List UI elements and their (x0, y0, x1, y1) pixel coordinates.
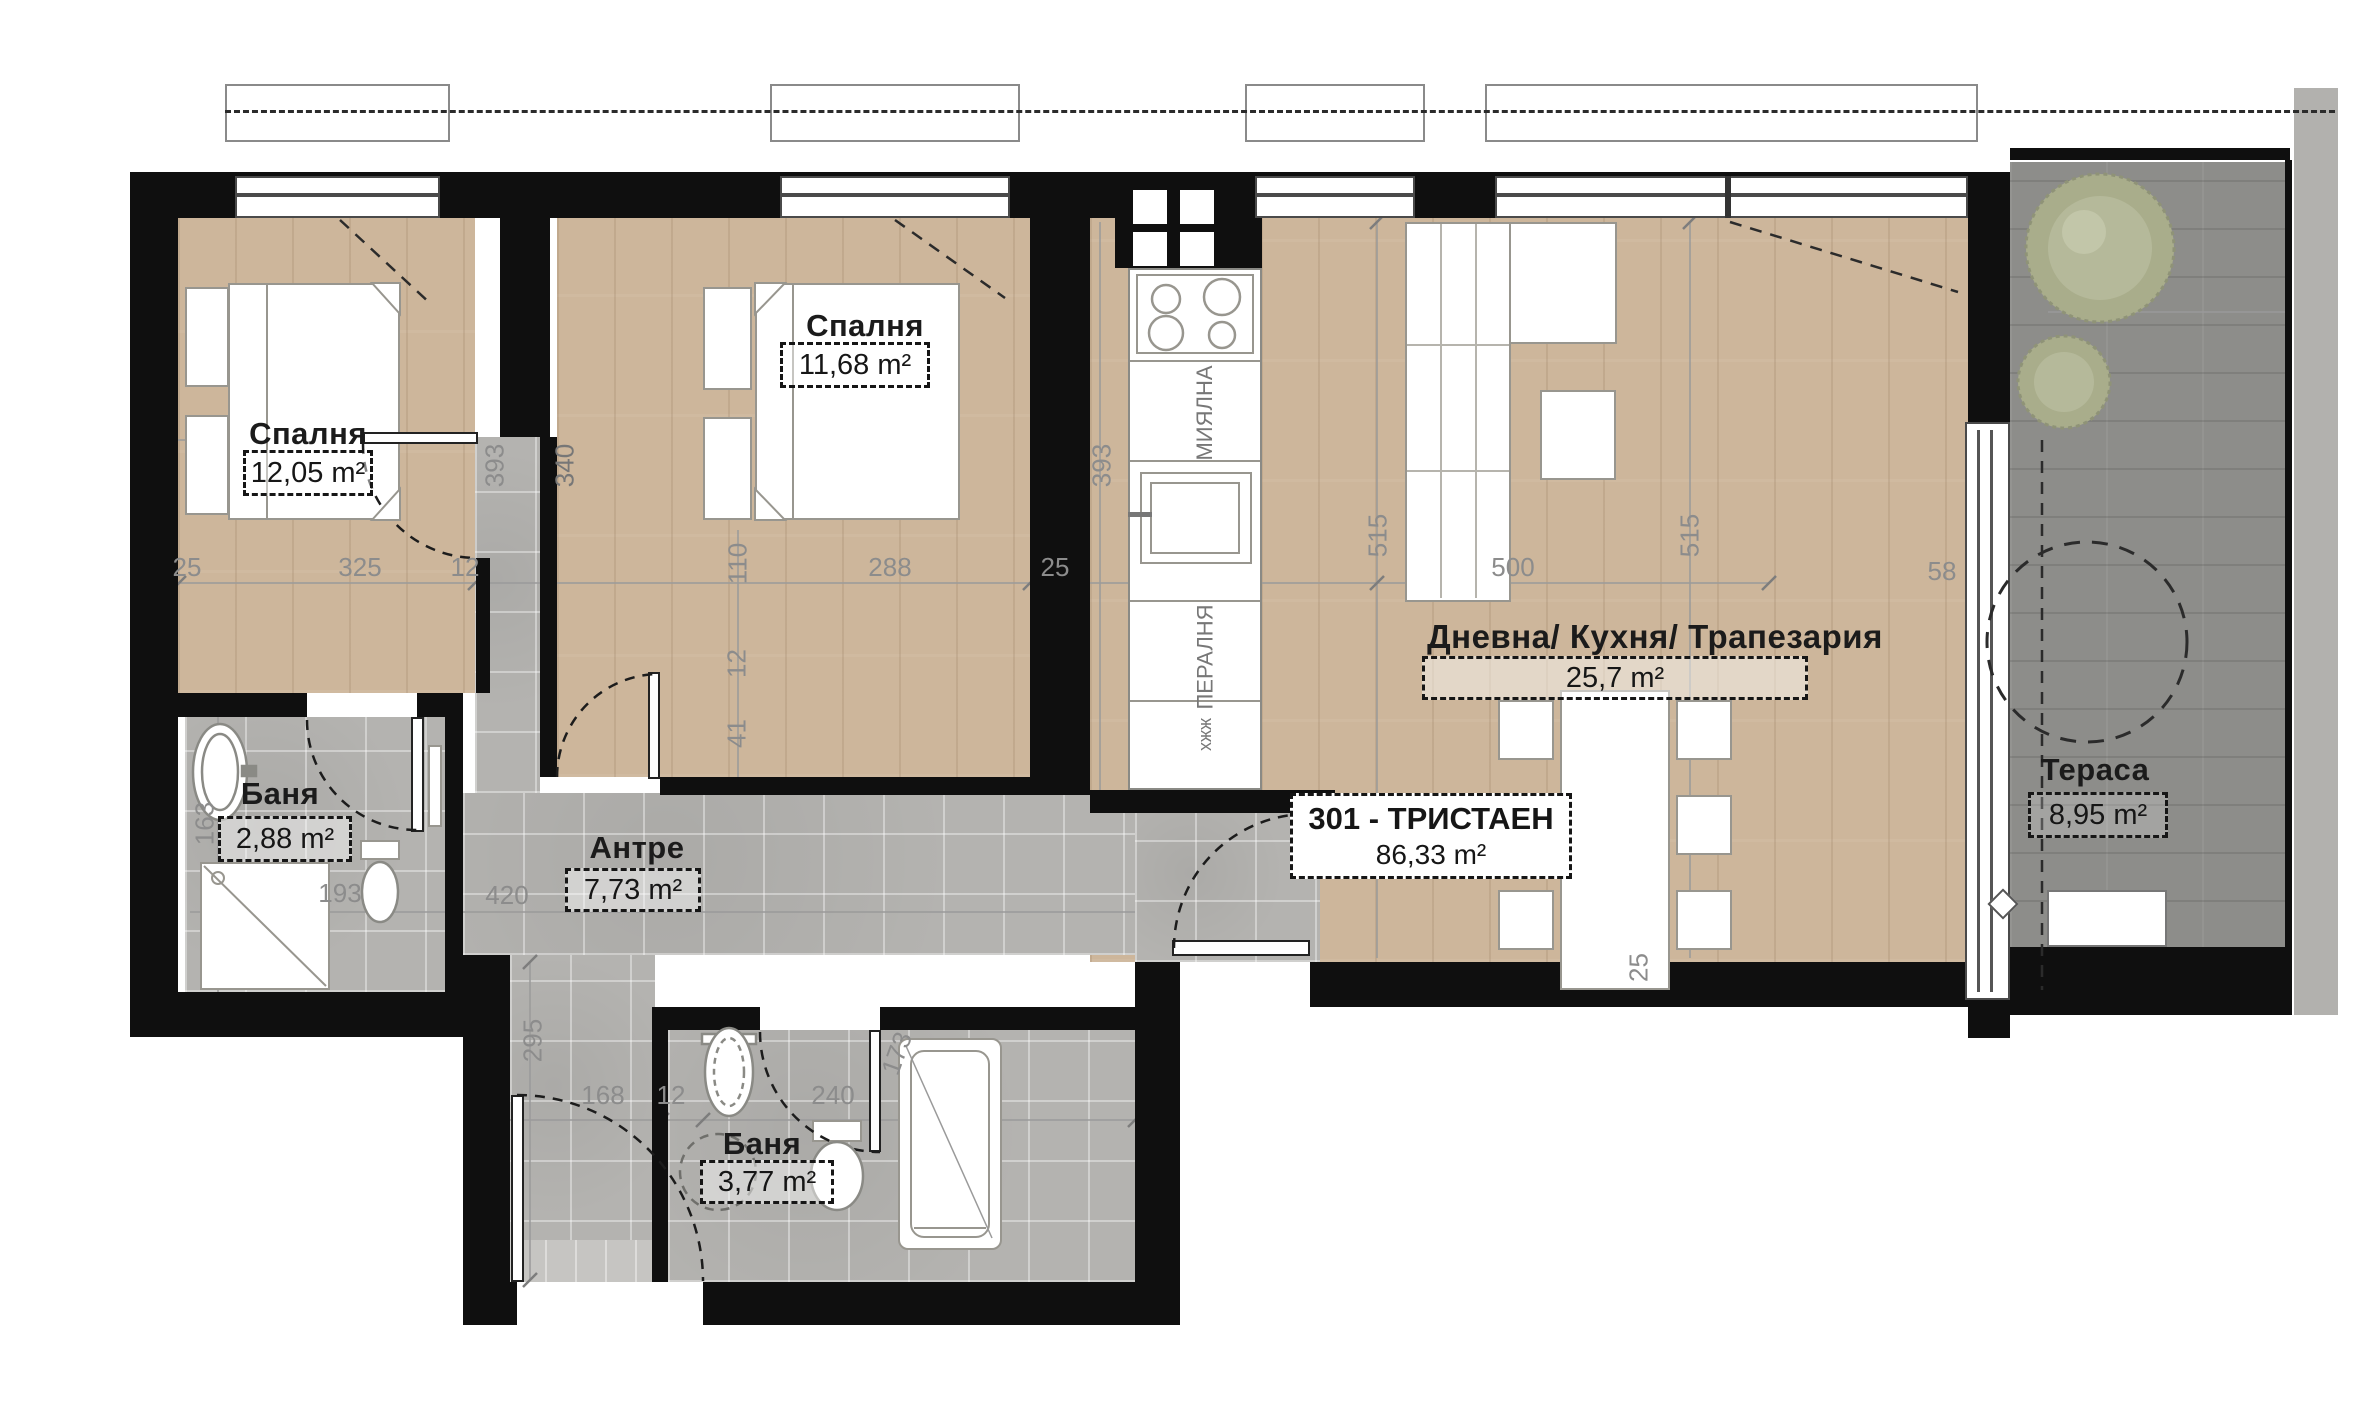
dim-25-living-bottom: 25 (1624, 941, 1655, 995)
unit-area: 86,33 m² (1376, 839, 1487, 871)
bedroom1-bed-fold (372, 283, 400, 314)
bedroom1-bed-fold-b (372, 489, 400, 520)
hall-area: 7,73 m² (565, 868, 701, 912)
dim-top-500: 500 (1473, 552, 1553, 583)
bath2-label: Баня (682, 1126, 842, 1162)
bath1-area: 2,88 m² (218, 816, 352, 862)
bedroom1-area: 12,05 m² (243, 450, 373, 496)
wing-entry-door-arc (517, 1095, 703, 1281)
dim-393-left: 393 (480, 426, 511, 506)
dim-515-a: 515 (1363, 496, 1394, 576)
bedroom2-bed-fold-b (755, 489, 785, 520)
dim-top-25a: 25 (160, 552, 214, 583)
dishwasher-label: МИЯЛНА (1192, 358, 1218, 468)
dim-top-325: 325 (320, 552, 400, 583)
dim-top-12: 12 (442, 552, 488, 583)
bath2-area: 3,77 m² (700, 1160, 834, 1204)
bath1-label: Баня (200, 776, 360, 812)
living-label: Дневна/ Кухня/ Трапезария (1420, 618, 1890, 656)
dim-193: 193 (305, 878, 375, 909)
apartment-entry-door-arc (1174, 814, 1308, 948)
terrace-area: 8,95 m² (2028, 792, 2168, 838)
shrub-icon-large (2026, 174, 2174, 322)
bedroom1-door-arc (363, 444, 477, 558)
dim-top-288: 288 (850, 552, 930, 583)
shrub-icon-small (2018, 336, 2110, 428)
dim-110: 110 (723, 531, 754, 597)
unit-name: 301 - ТРИСТАЕН (1308, 801, 1553, 837)
dim-393-bed2: 393 (1087, 426, 1118, 506)
dim-340: 340 (550, 426, 581, 506)
appliance-misc-label: хжж (1195, 697, 1216, 772)
living-sash-dash (1730, 222, 1958, 292)
dim-12-bottom: 12 (648, 1080, 694, 1111)
dim-58: 58 (1912, 556, 1972, 587)
bath2-washbasin-icon (702, 1028, 756, 1116)
dim-168: 168 (568, 1080, 638, 1111)
unit-label-box: 301 - ТРИСТАЕН 86,33 m² (1290, 793, 1572, 879)
living-area: 25,7 m² (1422, 656, 1808, 700)
bath1-door-arc (307, 720, 417, 830)
terrace-label: Тераса (2010, 752, 2180, 788)
dim-163: 163 (190, 789, 221, 859)
hall-label: Антре (552, 830, 722, 866)
dim-41: 41 (722, 709, 753, 759)
hot-tub-outline-icon (1987, 542, 2187, 742)
dim-12-mid: 12 (722, 639, 753, 689)
bedroom2-sash-dash (895, 220, 1005, 298)
bedroom1-label: Спалня (218, 416, 398, 452)
dim-240: 240 (798, 1080, 868, 1111)
dim-295: 295 (518, 1006, 549, 1076)
bedroom2-door-arc (557, 674, 660, 777)
dim-420: 420 (472, 880, 542, 911)
stove-burners (1149, 279, 1240, 350)
bathtub-diagonal-dim (906, 1046, 992, 1238)
bedroom2-label: Спалня (775, 308, 955, 344)
dim-top-25b: 25 (1028, 552, 1082, 583)
plan-overlay (0, 0, 2374, 1412)
bedroom2-area: 11,68 m² (780, 342, 930, 388)
dim-515-b: 515 (1675, 496, 1706, 576)
floor-plan: Спалня 12,05 m² Спалня 11,68 m² Дневна/ … (0, 0, 2374, 1412)
